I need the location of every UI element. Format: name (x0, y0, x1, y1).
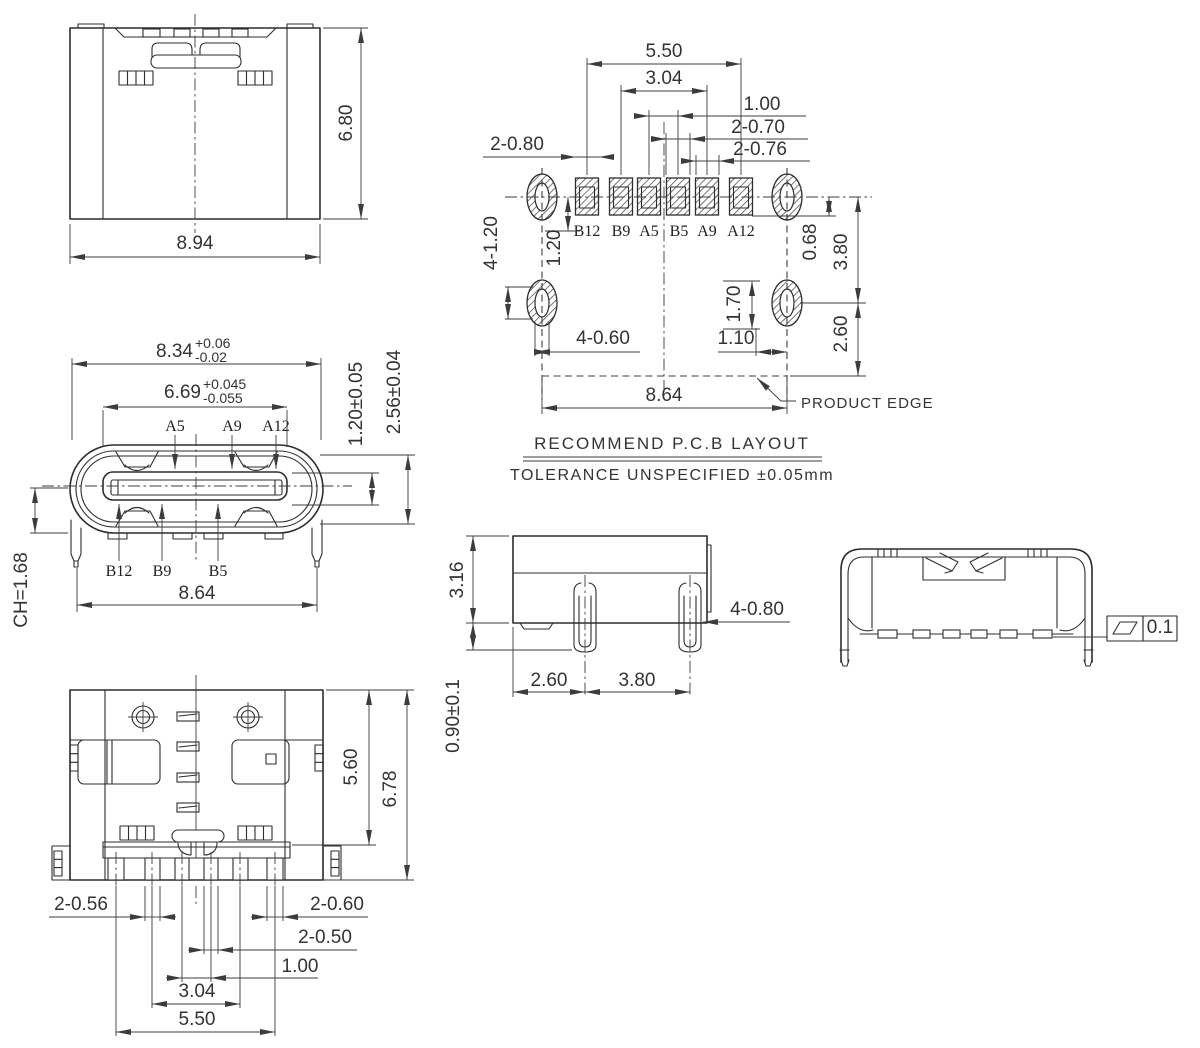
front-view: A5 A9 A12 B12 B9 B5 8.34 +0.06 -0.02 6.6… (11, 335, 415, 628)
pcb-dim-4-060: 4-0.60 (576, 328, 630, 349)
pcb-dim-3-80: 3.80 (831, 234, 852, 271)
rear-height-dim: 6.80 (336, 105, 357, 142)
pcb-pad-label-b9: B9 (612, 223, 631, 240)
pcb-pad-label-b5: B5 (670, 223, 689, 240)
pcb-dim-5-50: 5.50 (646, 41, 683, 62)
pcb-dim-3-04: 3.04 (646, 68, 683, 89)
front-dim-ch: CH=1.68 (11, 552, 32, 628)
bottom-dim-5-50: 5.50 (179, 1009, 216, 1030)
side-dim-3-16: 3.16 (447, 562, 468, 599)
latch-finger-left (926, 553, 958, 573)
bottom-dim-6-78: 6.78 (380, 771, 401, 808)
pcb-dim-4-120: 4-1.20 (481, 216, 502, 270)
front-label-b9: B9 (153, 563, 172, 580)
side-dim-3-80: 3.80 (619, 670, 656, 691)
front-dim-1-20: 1.20±0.05 (346, 362, 367, 446)
boss-right (233, 702, 263, 732)
rear-view: 8.94 6.80 (70, 14, 368, 264)
side-view: 3.16 0.90±0.1 2.60 3.80 4-0.80 (443, 536, 790, 753)
engineering-drawing: 8.94 6.80 B12 B9 A5 B5 A9 A12 (0, 0, 1200, 1048)
front-dim-6-69-tol-low: -0.055 (203, 390, 243, 406)
front-label-a12: A12 (262, 418, 290, 435)
front-dim-8-64: 8.64 (179, 583, 216, 604)
front-dim-2-56: 2.56±0.04 (384, 349, 405, 434)
pcb-dim-1-00: 1.00 (744, 94, 781, 115)
front-dim-8-34-tol-low: -0.02 (195, 349, 227, 365)
tolerance-note: TOLERANCE UNSPECIFIED ±0.05mm (510, 467, 834, 484)
front-label-a5: A5 (165, 418, 185, 435)
front-leg-left (71, 520, 81, 567)
front-label-a9: A9 (222, 418, 242, 435)
side-dim-4-080: 4-0.80 (730, 599, 784, 620)
top-view: 0.1 (840, 549, 1177, 666)
side-dim-2-60: 2.60 (531, 670, 568, 691)
bottom-dim-2-050: 2-0.50 (298, 927, 352, 948)
pcb-dim-0-68: 0.68 (800, 224, 821, 261)
pcb-dim-8-64: 8.64 (646, 385, 683, 406)
rear-grille-right (238, 71, 272, 85)
pcb-layout-title: RECOMMEND P.C.B LAYOUT (534, 434, 810, 453)
pcb-pad-label-a9: A9 (697, 223, 717, 240)
front-dim-6-69: 6.69 (164, 382, 201, 403)
pcb-layout-view: B12 B9 A5 B5 A9 A12 5.50 3.04 1.00 2-0.7… (481, 41, 934, 484)
bottom-dim-3-04: 3.04 (179, 981, 216, 1002)
rear-grille-left (119, 71, 153, 85)
boss-left (128, 702, 158, 732)
title-divider (523, 457, 822, 461)
pcb-pad-label-a12: A12 (727, 223, 755, 240)
flatness-callout: 0.1 (1053, 616, 1177, 641)
bottom-dim-2-060: 2-0.60 (310, 894, 364, 915)
bottom-dim-5-60: 5.60 (341, 749, 362, 786)
side-dim-0-90: 0.90±0.1 (443, 679, 464, 753)
bottom-view: 5.60 6.78 2-0.56 2-0.60 2-0.50 1.00 3.04… (49, 675, 414, 1036)
pcb-dim-1-70: 1.70 (724, 286, 745, 323)
bottom-dim-2-056: 2-0.56 (54, 894, 108, 915)
drawing-canvas: 8.94 6.80 B12 B9 A5 B5 A9 A12 (0, 0, 1200, 1048)
bottom-pins (108, 852, 283, 886)
latch-finger-right (970, 553, 1002, 573)
pcb-pad-label-a5: A5 (639, 223, 659, 240)
product-edge-label: PRODUCT EDGE (801, 395, 934, 412)
pcb-dim-1-10: 1.10 (718, 328, 755, 349)
front-label-b5: B5 (209, 563, 228, 580)
pcb-pad-label-b12: B12 (574, 223, 601, 240)
pcb-dim-2-070: 2-0.70 (731, 117, 785, 138)
pcb-dim-2-080: 2-0.80 (490, 134, 544, 155)
front-dim-8-34: 8.34 (156, 341, 193, 362)
flatness-icon (1113, 622, 1137, 634)
front-leg-right (312, 520, 322, 567)
pcb-dim-1-20: 1.20 (544, 230, 565, 267)
pcb-dim-2-60: 2.60 (831, 316, 852, 353)
front-label-b12: B12 (106, 563, 133, 580)
rear-width-dim: 8.94 (177, 233, 214, 254)
bottom-dim-1-00: 1.00 (282, 956, 319, 977)
pcb-dim-2-076: 2-0.76 (733, 139, 787, 160)
flatness-value: 0.1 (1147, 617, 1173, 638)
